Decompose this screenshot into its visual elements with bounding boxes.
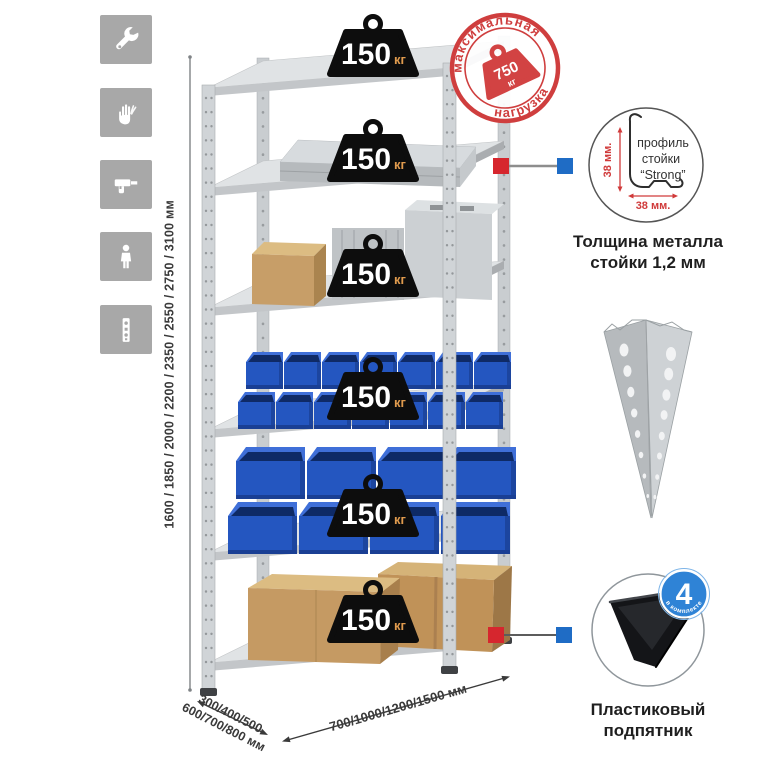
svg-text:кг: кг — [394, 52, 407, 67]
svg-text:150: 150 — [341, 381, 391, 414]
svg-text:кг: кг — [394, 395, 407, 410]
shelving-infographic: 150 кг 150 кг 150 кг 150 кг 150 кг 150 к… — [0, 0, 765, 765]
svg-text:кг: кг — [394, 157, 407, 172]
dim-38-vertical: 38 мм. — [602, 143, 614, 178]
svg-text:150: 150 — [341, 38, 391, 71]
svg-text:кг: кг — [394, 272, 407, 287]
svg-text:кг: кг — [394, 512, 407, 527]
height-dimension-line — [188, 55, 192, 692]
load-badge: 150 кг — [330, 17, 416, 75]
red-marker — [488, 627, 504, 643]
profile-label-3: “Strong” — [640, 168, 685, 182]
foot-caption-line1: Пластиковый — [556, 699, 740, 720]
foot-callout — [488, 627, 572, 643]
red-marker — [493, 158, 509, 174]
load-badge: 150 кг — [330, 122, 416, 180]
foot-caption: Пластиковый подпятник — [556, 699, 740, 742]
svg-text:кг: кг — [394, 618, 407, 633]
blue-marker — [556, 627, 572, 643]
profile-label-1: профиль — [637, 136, 689, 150]
post-detail-image — [604, 320, 692, 518]
profile-caption-line1: Толщина металла — [556, 231, 740, 252]
foot-detail-circle: 4 в комплекте — [592, 569, 710, 687]
profile-callout — [493, 158, 573, 174]
svg-text:150: 150 — [341, 604, 391, 637]
blue-marker — [557, 158, 573, 174]
profile-label-2: стойки — [642, 152, 680, 166]
count-badge-value: 4 — [676, 578, 693, 611]
profile-caption: Толщина металла стойки 1,2 мм — [556, 231, 740, 274]
svg-text:150: 150 — [341, 498, 391, 531]
svg-text:150: 150 — [341, 143, 391, 176]
profile-detail-circle: 38 мм. 38 мм. профиль стойки “Strong” — [589, 108, 703, 222]
foot-caption-line2: подпятник — [556, 720, 740, 741]
height-options-label: 1600 / 1850 / 2000 / 2200 / 2350 / 2550 … — [163, 129, 178, 599]
scene-svg: 150 кг 150 кг 150 кг 150 кг 150 кг 150 к… — [0, 0, 765, 765]
svg-text:150: 150 — [341, 258, 391, 291]
dim-38-horizontal: 38 мм. — [636, 200, 671, 212]
profile-caption-line2: стойки 1,2 мм — [556, 252, 740, 273]
